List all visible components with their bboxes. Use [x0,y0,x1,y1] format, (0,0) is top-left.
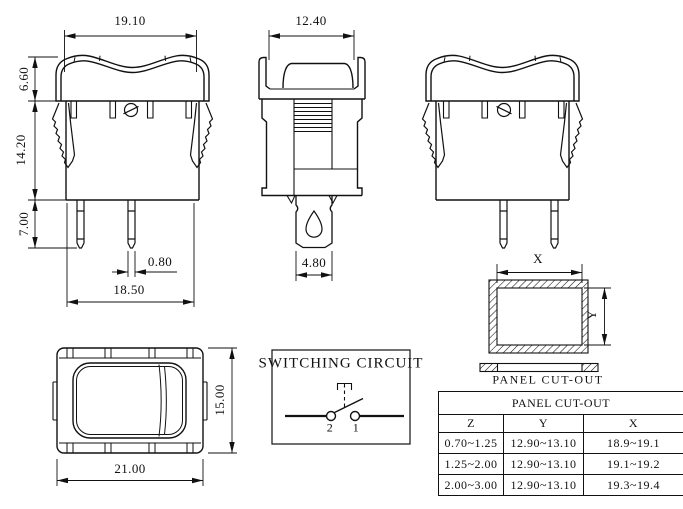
panel-cutout-table: PANEL CUT-OUT Z Y X 0.70~1.25 12.90~13.1… [438,391,683,496]
drawing-sheet: 19.10 6.60 14.20 7.00 0.80 18.50 12.40 4… [0,0,683,509]
cutout-x-dim-label: X [533,251,543,267]
cell-z: 0.70~1.25 [439,433,504,454]
top-view-dimensions [57,348,237,486]
front-bottom-width-dim-label: 18.50 [113,282,144,298]
table-row: 1.25~2.00 12.90~13.10 19.1~19.2 [439,454,683,475]
top-view-body [53,348,207,453]
cutout-y-dim-label: Y [584,310,600,320]
actuator-symbol [338,384,352,391]
front-terminal-length-dim-label: 7.00 [16,212,32,236]
top-view-width-dim-label: 21.00 [114,461,145,477]
side-terminal-width-dim-label: 4.80 [302,255,326,271]
side-view-dimensions [269,30,354,281]
cell-z: 2.00~3.00 [439,475,504,496]
cell-x: 18.9~19.1 [584,433,683,454]
table-row: 2.00~3.00 12.90~13.10 19.3~19.4 [439,475,683,496]
cell-y: 12.90~13.10 [504,433,584,454]
front-bezel-height-dim-label: 6.60 [16,67,32,91]
table-col-z: Z [439,415,504,433]
table-col-x: X [584,415,683,433]
table-col-y: Y [504,415,584,433]
circuit-terminal-2-label: 2 [327,421,333,436]
front-top-width-dim-label: 19.10 [114,13,145,29]
cell-y: 12.90~13.10 [504,454,584,475]
screw-slot-icon [124,104,139,117]
circuit-terminal-1-label: 1 [353,421,359,436]
front-terminal-width-dim-label: 0.80 [148,254,172,270]
terminal-pin [77,200,84,248]
top-view-height-dim-label: 15.00 [212,384,228,415]
cell-x: 19.1~19.2 [584,454,683,475]
cell-y: 12.90~13.10 [504,475,584,496]
cell-x: 19.3~19.4 [584,475,683,496]
side-top-width-dim-label: 12.40 [295,13,326,29]
front-view-body [53,55,213,248]
front-view-right [423,55,583,248]
panel-cutout-caption: PANEL CUT-OUT [492,373,603,388]
side-view-body [259,58,365,248]
switching-circuit-title: SWITCHING CIRCUIT [259,356,424,373]
table-row: 0.70~1.25 12.90~13.10 18.9~19.1 [439,433,683,454]
front-body-height-dim-label: 14.20 [13,134,29,165]
table-title: PANEL CUT-OUT [439,392,683,415]
cell-z: 1.25~2.00 [439,454,504,475]
